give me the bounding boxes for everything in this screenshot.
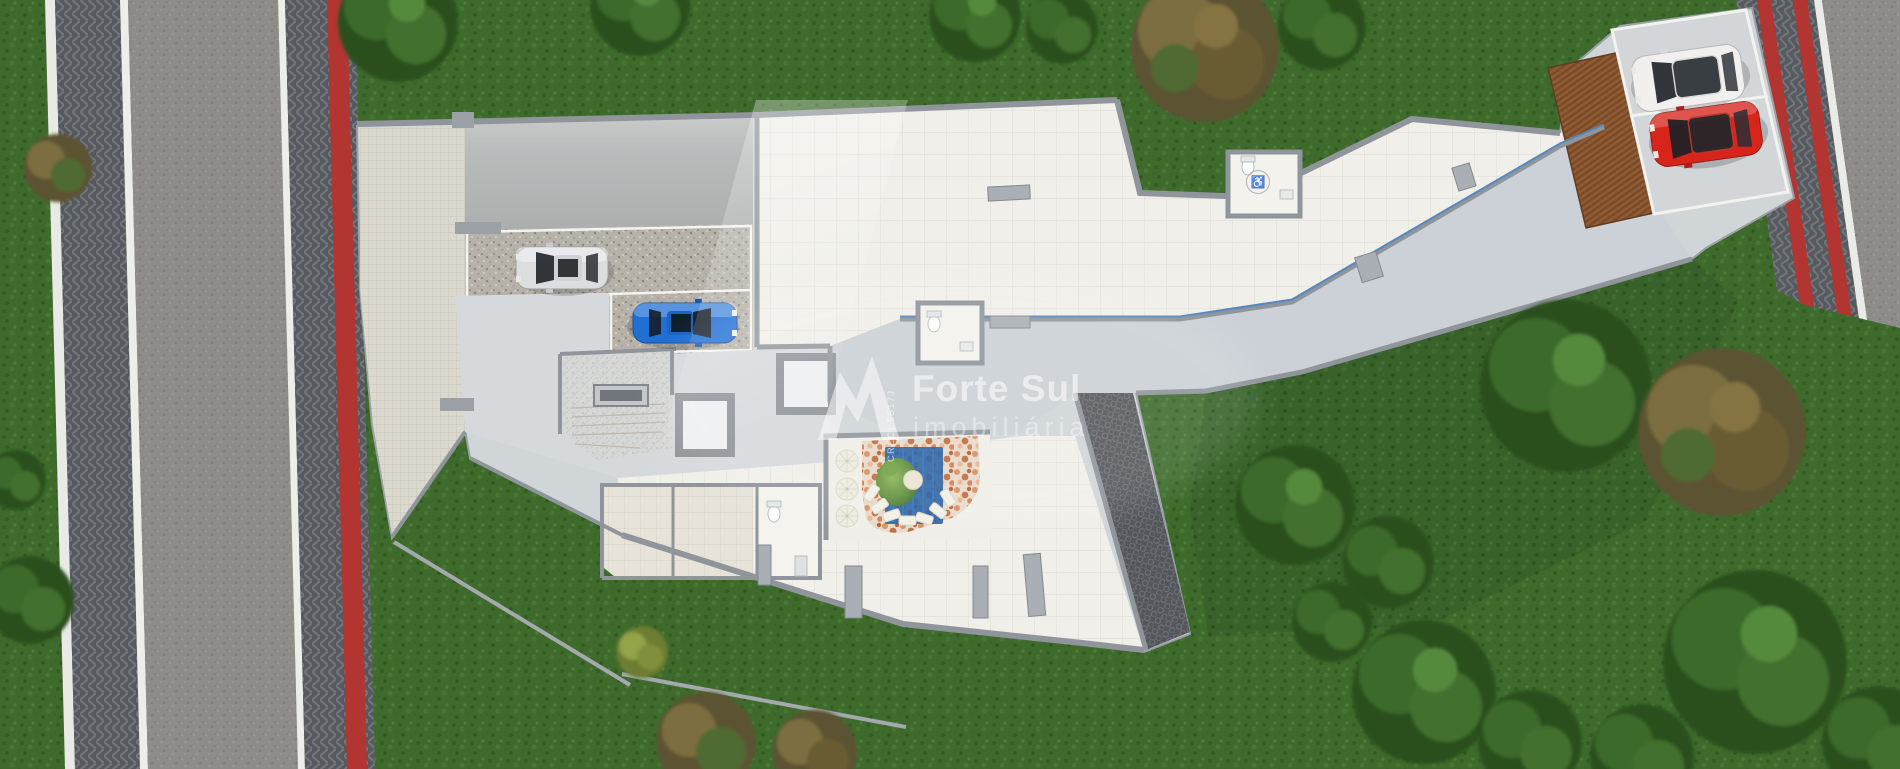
stair-void xyxy=(600,390,642,401)
service-rooms xyxy=(602,487,753,578)
windshield xyxy=(536,252,554,284)
render-canvas xyxy=(0,0,1900,769)
street-left xyxy=(45,0,375,769)
accessible-parking-icon: ♿ xyxy=(1246,170,1270,194)
asphalt-road xyxy=(128,0,298,769)
silver-sports-car xyxy=(514,243,614,296)
driveway-shading xyxy=(465,119,753,230)
watermark-glow xyxy=(658,270,1258,530)
site-plan-render: CRECI 5517J Forte Sul imobiliária ♿ xyxy=(0,0,1900,769)
